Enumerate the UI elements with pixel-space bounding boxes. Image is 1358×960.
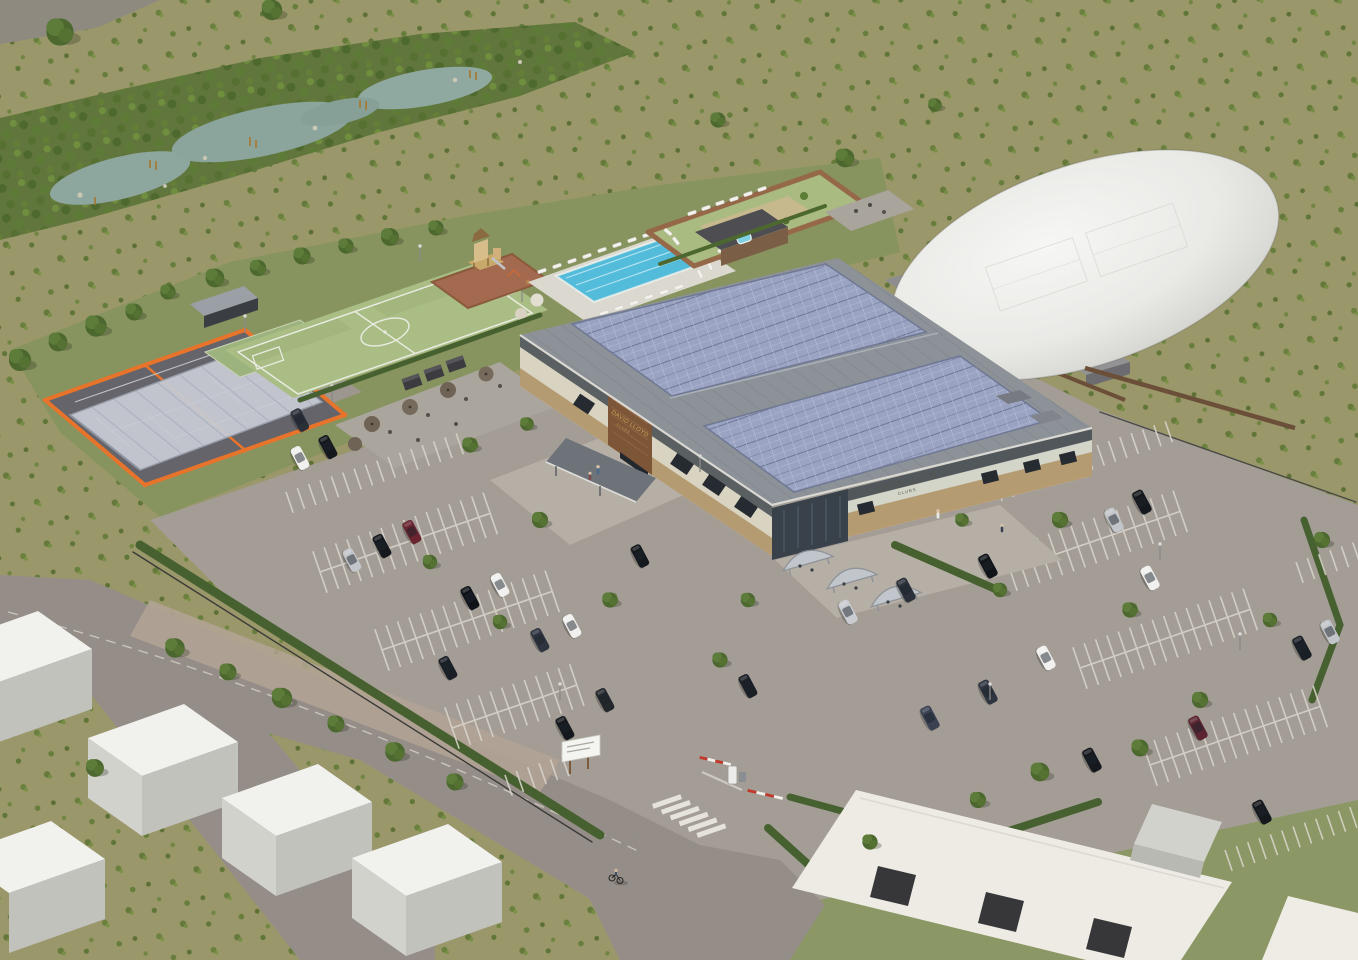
person (588, 472, 591, 481)
person (596, 465, 599, 475)
pool-parasol (531, 294, 544, 307)
garden-shrub (800, 192, 808, 200)
aerial-render: DAVID LLOYD CLUBS DAVID LLOYD CLUBS (0, 0, 1358, 960)
person (1000, 524, 1003, 533)
person (936, 509, 939, 518)
